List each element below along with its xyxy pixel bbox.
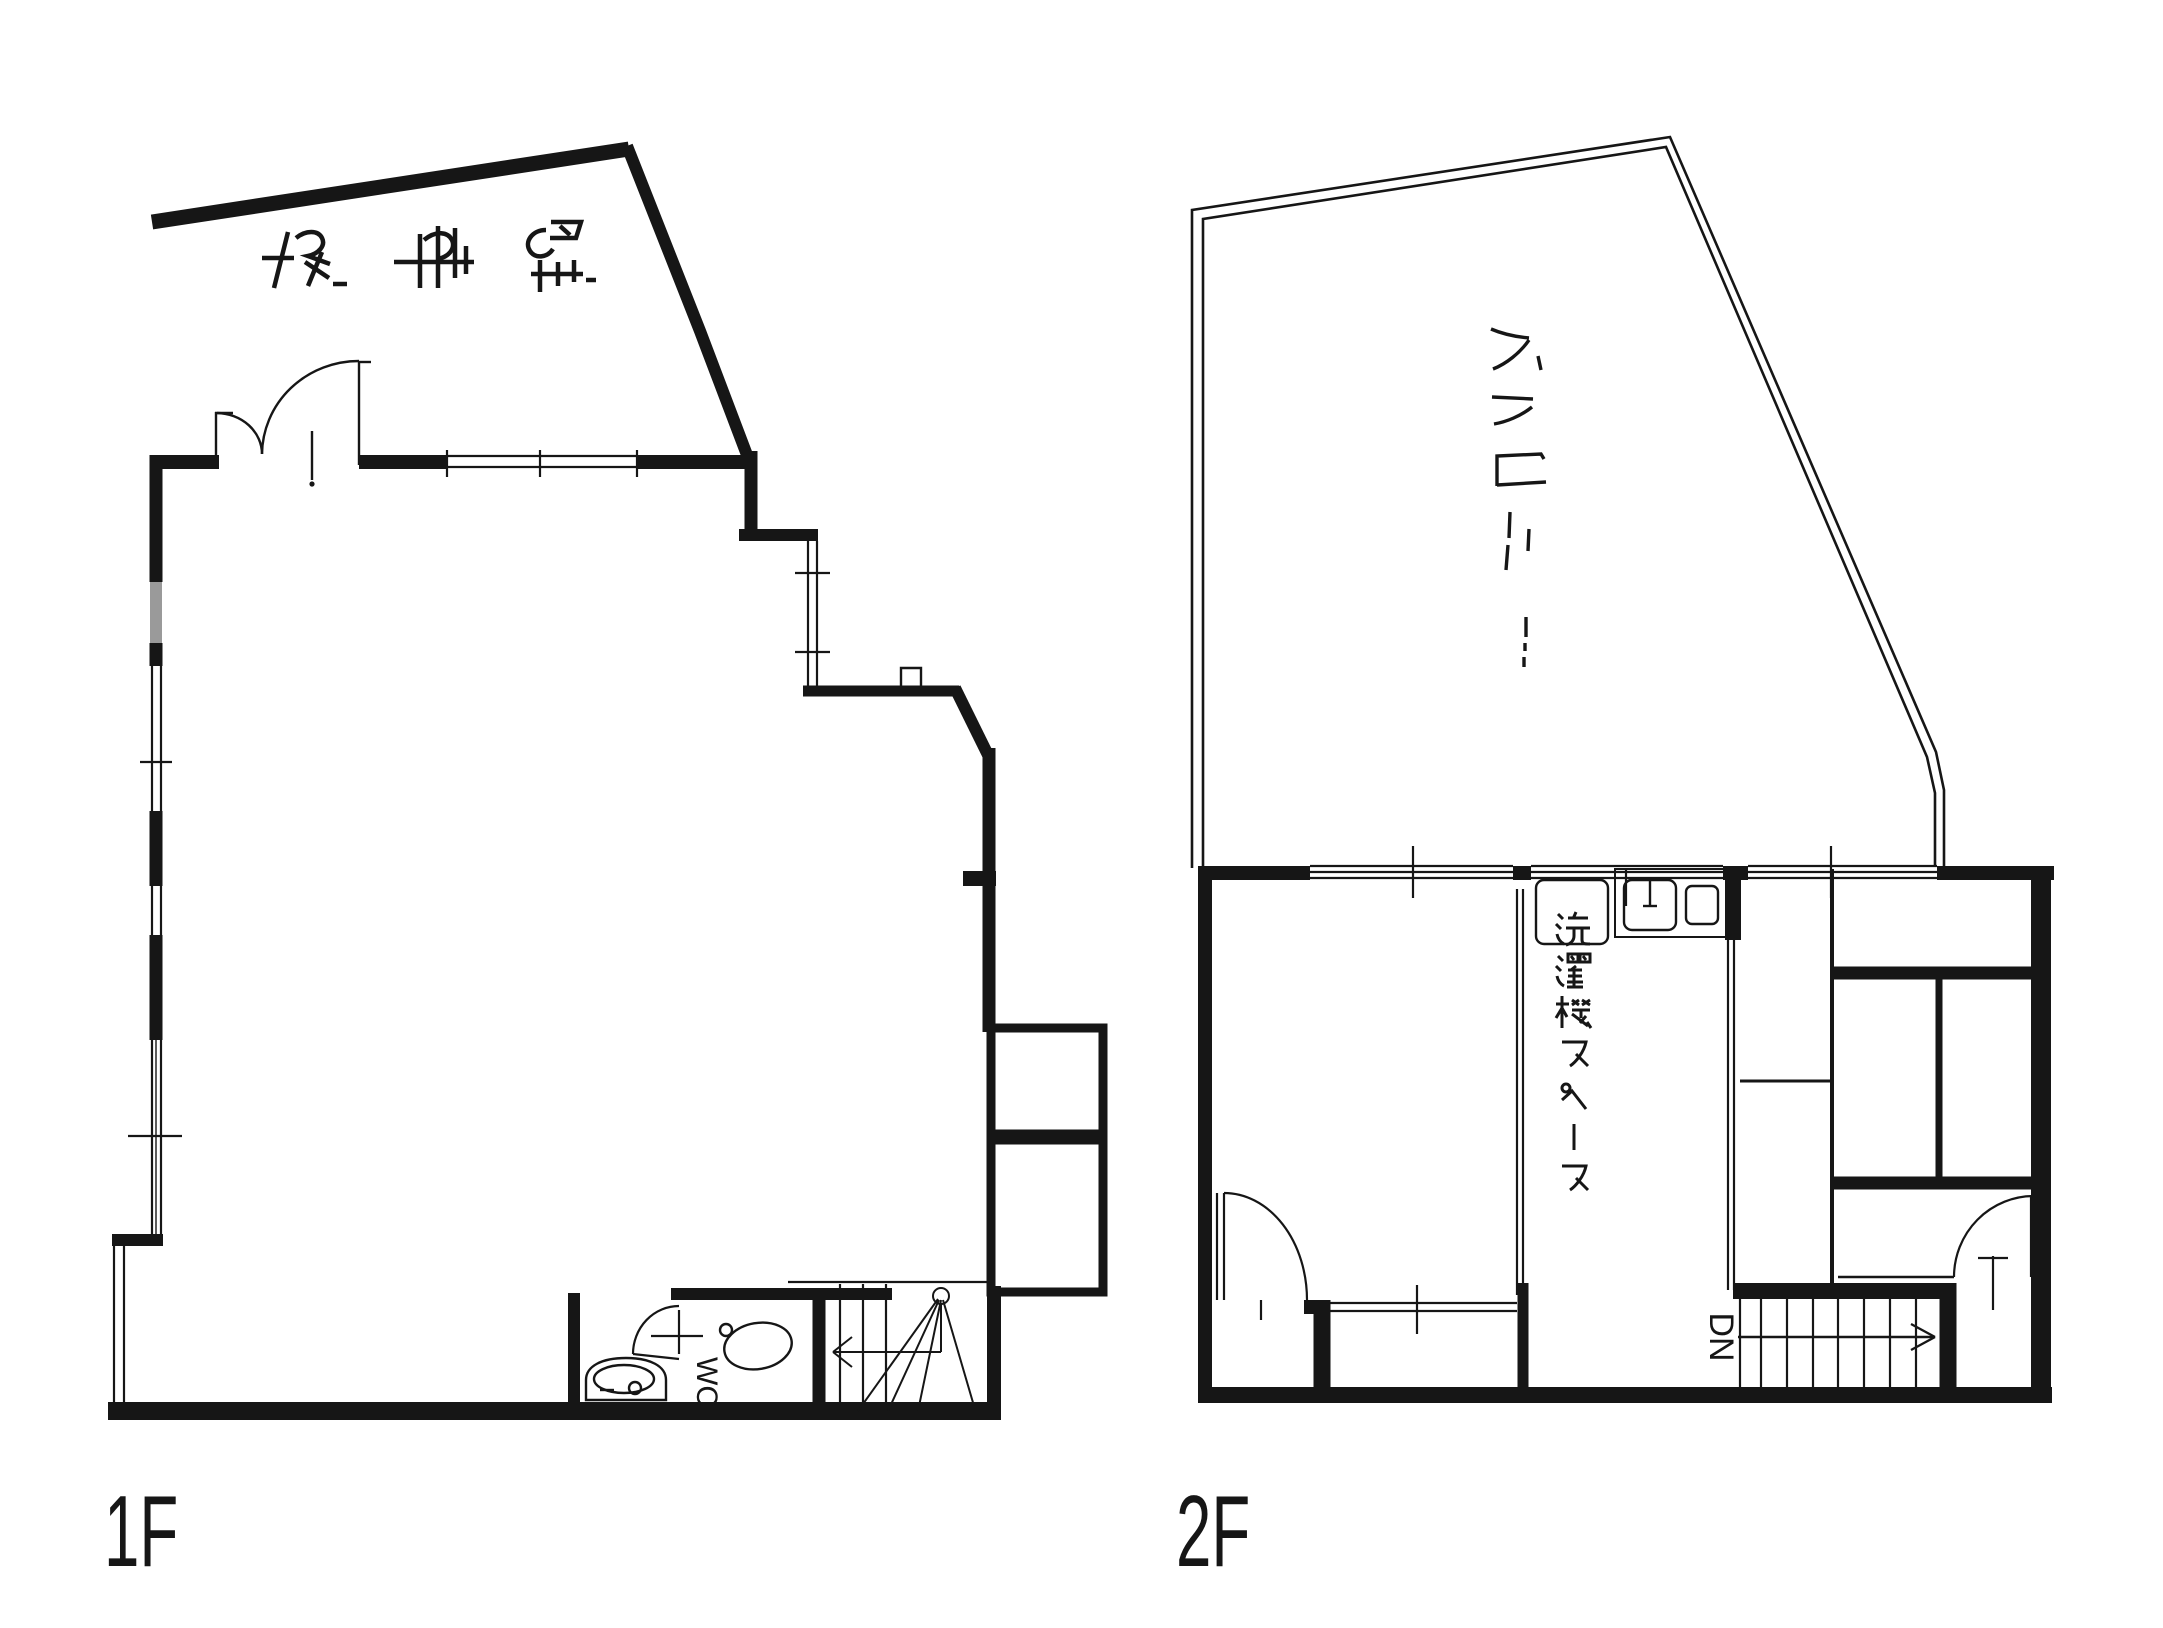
svg-text:1F: 1F — [104, 1475, 178, 1587]
svg-text:2F: 2F — [1176, 1475, 1250, 1587]
svg-text:WC: WC — [690, 1357, 723, 1407]
svg-text:DN: DN — [1702, 1312, 1740, 1361]
